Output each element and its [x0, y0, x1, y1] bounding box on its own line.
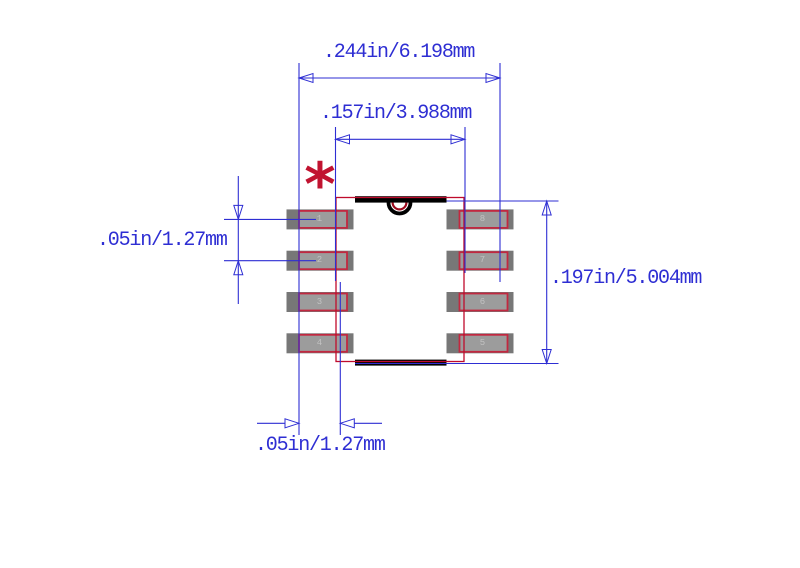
pin-number-1: 1 [310, 214, 330, 225]
pin-number-3: 3 [310, 297, 330, 308]
pin-number-4: 4 [310, 338, 330, 349]
body-bars [355, 196, 447, 365]
dim-label-pad-offset-bottom: .05in/1.27mm [255, 435, 385, 457]
notch-inner-arc [393, 203, 407, 210]
pin-number-5: 5 [473, 338, 493, 349]
solder-pads-inner [299, 211, 508, 352]
footprint-drawing: .244in/6.198mm .157in/3.988mm .05in/1.27… [0, 0, 800, 568]
pin-number-6: 6 [473, 297, 493, 308]
pin-number-2: 2 [310, 255, 330, 266]
dim-body-width [336, 127, 466, 281]
dim-label-body-height: .197in/5.004mm [550, 268, 701, 290]
body-outline [336, 198, 464, 362]
body-bottom-bar [355, 360, 447, 366]
dim-label-pin-pitch-left: .05in/1.27mm [97, 230, 227, 252]
dim-label-body-width: .157in/3.988mm [320, 103, 471, 125]
solder-pads-outer [287, 209, 514, 353]
notch-icon [389, 203, 411, 214]
pin-number-7: 7 [473, 255, 493, 266]
dim-label-overall-width: .244in/6.198mm [323, 42, 474, 64]
pin-number-8: 8 [473, 214, 493, 225]
pin1-marker-asterisk: * [303, 155, 337, 215]
